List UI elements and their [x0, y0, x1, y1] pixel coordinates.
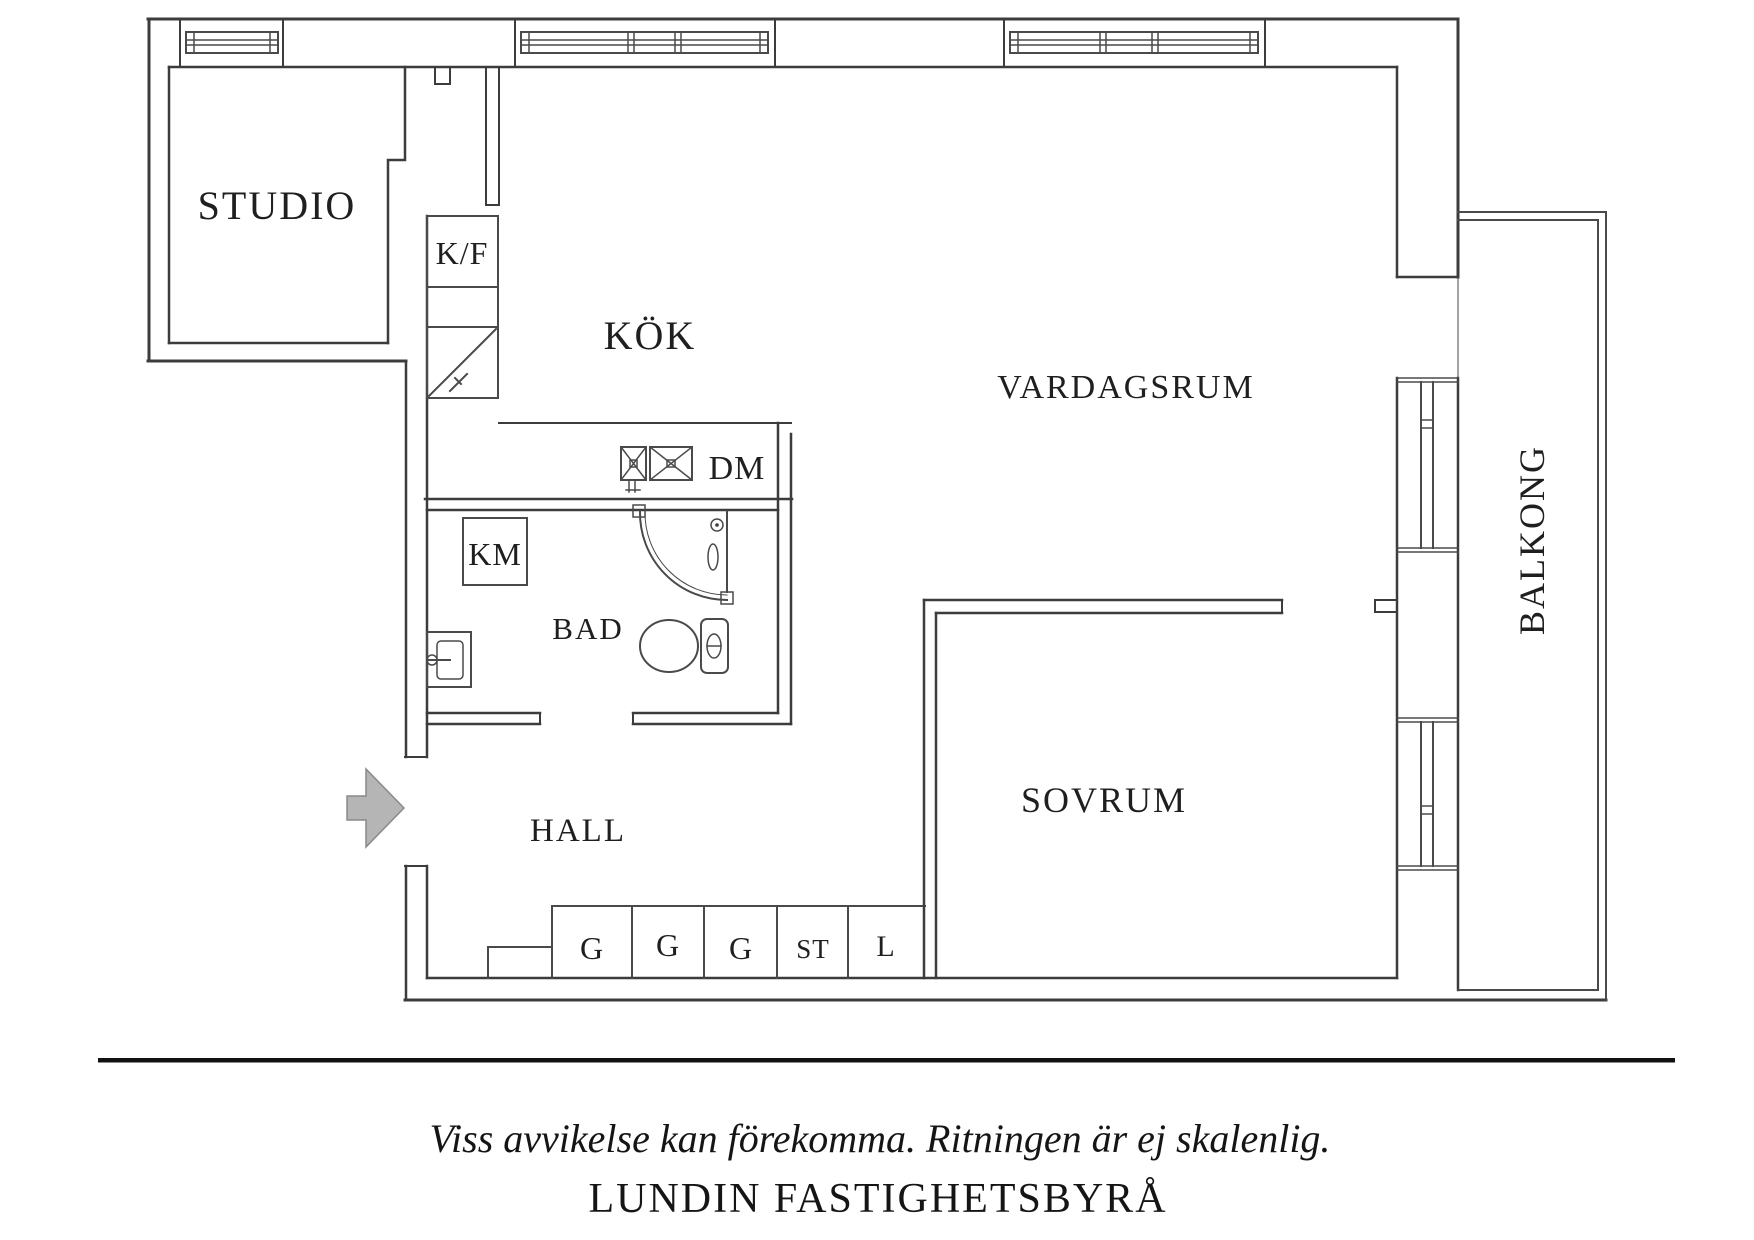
window-icon-studio-bay [186, 32, 278, 53]
closet-label-5: L [876, 930, 895, 963]
sink-icon-large [650, 447, 692, 480]
shower-icon [633, 505, 733, 604]
kitchen-label: KÖK [604, 313, 697, 358]
studio-walls [388, 67, 405, 343]
studio-label: STUDIO [198, 183, 357, 228]
toilet-icon [640, 619, 728, 673]
right-wall-windows [1397, 378, 1458, 870]
bathroom-label: BAD [552, 611, 623, 646]
sink-icon-small [621, 447, 646, 492]
floor-plan-page: BALKONG STUDIO K/F DM KÖK VARDAGSRUM [0, 0, 1754, 1240]
window-icon-kitchen-bay [521, 32, 768, 53]
balcony-label: BALKONG [1512, 445, 1552, 635]
outer-walls [148, 19, 1606, 1000]
footer-divider [98, 1058, 1675, 1063]
window-icon-bedroom-right [1397, 718, 1458, 870]
footer-disclaimer: Viss avvikelse kan förekomma. Ritningen … [430, 1116, 1331, 1161]
entrance-arrow-icon [347, 769, 404, 847]
floor-plan: BALKONG STUDIO K/F DM KÖK VARDAGSRUM [0, 0, 1754, 1240]
window-icon-livingroom-bay [1010, 32, 1258, 53]
living-room-label: VARDAGSRUM [997, 369, 1254, 406]
hall-label: HALL [530, 813, 626, 849]
footer-brand: LUNDIN FASTIGHETSBYRÅ [588, 1176, 1167, 1222]
closet-label-4: ST [796, 934, 830, 964]
closet-label-2: G [656, 927, 680, 963]
dishwasher-label: DM [709, 450, 766, 487]
bedroom-label: SOVRUM [1021, 780, 1187, 820]
closet-label-1: G [580, 930, 604, 966]
top-wall-windows [180, 19, 1265, 67]
hall-step-box [488, 947, 552, 978]
window-icon-livingroom-right [1397, 378, 1458, 552]
basin-icon [427, 632, 471, 687]
closet-label-3: G [729, 930, 753, 966]
fridge-freezer-label: K/F [436, 235, 489, 271]
washing-machine-label: KM [468, 536, 522, 572]
